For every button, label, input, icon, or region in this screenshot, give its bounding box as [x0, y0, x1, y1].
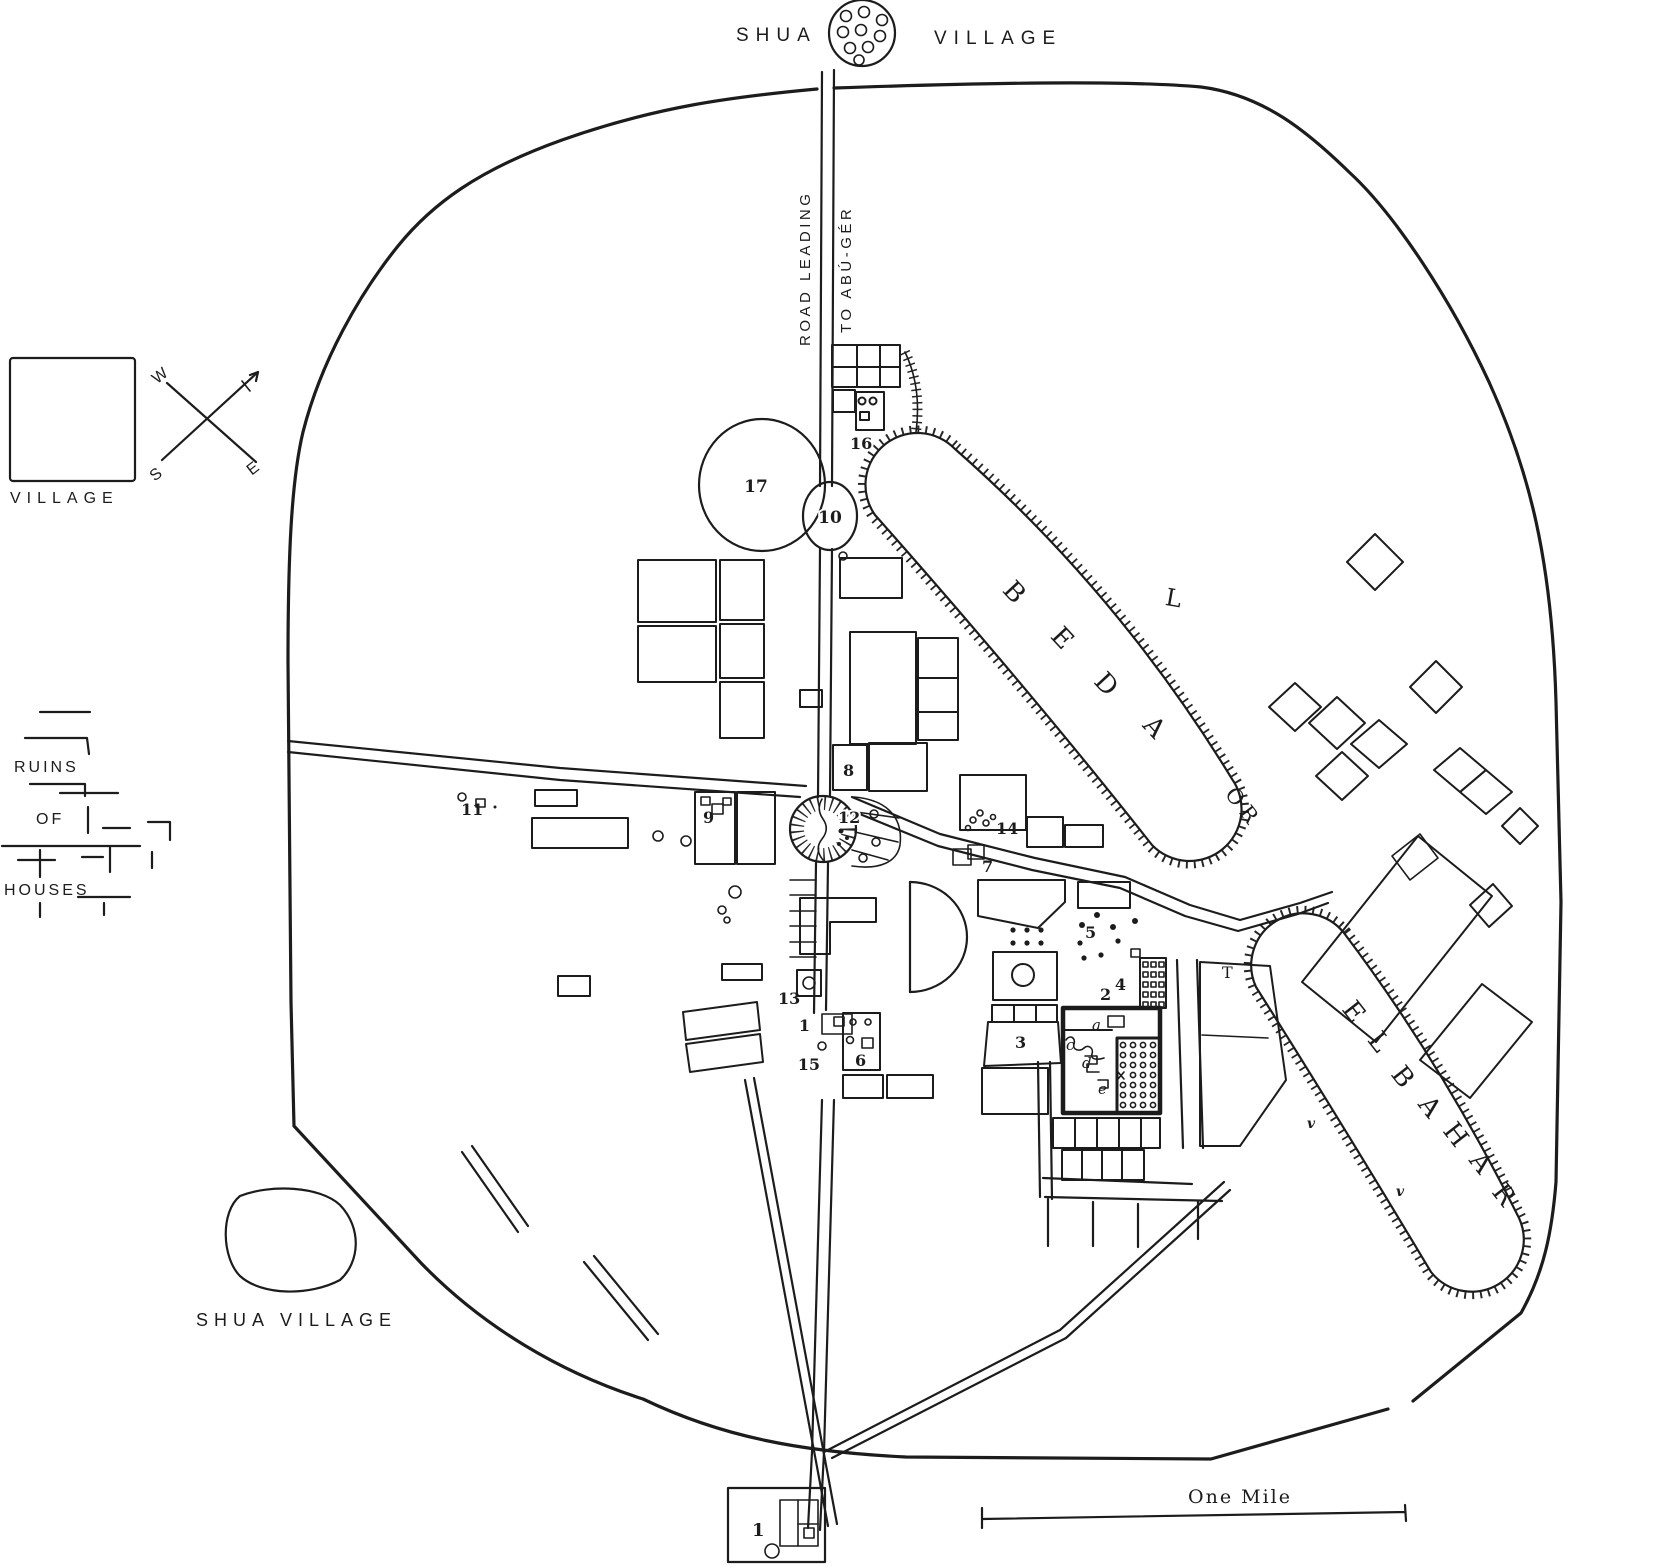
t-mark: T — [1222, 963, 1235, 982]
marker-9: 9 — [703, 808, 714, 827]
marker-1-legend: 1 — [752, 1520, 765, 1541]
ruins-label-2: OF — [36, 811, 64, 828]
letter-d: d — [1082, 1054, 1092, 1072]
v-mark-1: v — [1307, 1116, 1316, 1132]
ruins-label-1: RUINS — [14, 759, 79, 776]
marker-1: 1 — [799, 1016, 810, 1035]
marker-10: 10 — [818, 508, 842, 528]
shua-top-label: SHUA — [736, 25, 817, 46]
marker-14: 14 — [996, 819, 1018, 838]
marker-13: 13 — [778, 989, 800, 1008]
letter-c: c — [1066, 1036, 1075, 1054]
village-top-label: VILLAGE — [934, 28, 1062, 49]
letter-e: e — [1098, 1080, 1107, 1098]
marker-4: 4 — [1115, 975, 1126, 994]
marker-8: 8 — [843, 761, 854, 780]
marker-11: 11 — [461, 800, 483, 819]
ruins-label-3: HOUSES — [4, 882, 90, 899]
marker-7: 7 — [982, 857, 993, 876]
marker-16: 16 — [850, 434, 872, 453]
marker-5: 5 — [1085, 923, 1096, 942]
letter-a: a — [1092, 1016, 1101, 1034]
v-mark-2: v — [1396, 1184, 1405, 1200]
map-page: SHUA VILLAGE ROAD LEADING TO ABÚ-GÉR VIL… — [0, 0, 1676, 1567]
marker-12: 12 — [838, 808, 860, 827]
marker-17: 17 — [744, 477, 768, 497]
south-shua-label: SHUA VILLAGE — [196, 1310, 397, 1330]
town-plan-map: SHUA VILLAGE ROAD LEADING TO ABÚ-GÉR VIL… — [0, 0, 1676, 1567]
marker-6: 6 — [855, 1051, 866, 1070]
road-label-1: ROAD LEADING — [797, 191, 814, 346]
road-label-2: TO ABÚ-GÉR — [838, 206, 855, 333]
scale-label: One Mile — [1188, 1486, 1292, 1508]
marker-15: 15 — [798, 1055, 820, 1074]
marker-3: 3 — [1015, 1033, 1026, 1052]
marker-2: 2 — [1100, 985, 1111, 1004]
village-legend-label: VILLAGE — [10, 490, 119, 507]
